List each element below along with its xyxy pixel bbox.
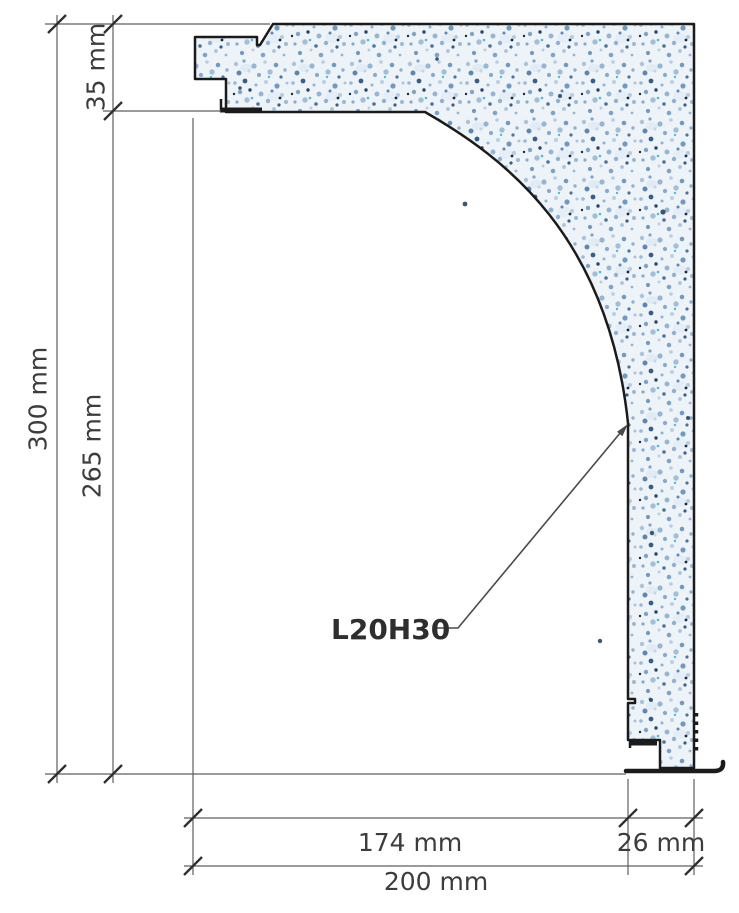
label-overall-height: 300 mm	[24, 347, 53, 451]
label-inner-width: 174 mm	[358, 828, 462, 857]
technical-drawing-canvas: 300 mm 35 mm 265 mm 174 mm 26 mm 200 mm …	[0, 0, 739, 913]
product-code-label: L20H30	[331, 613, 450, 646]
label-leg-width: 26 mm	[617, 828, 705, 857]
cornice-profile-outline	[195, 24, 694, 768]
cornice-profile-drawing: 300 mm 35 mm 265 mm 174 mm 26 mm 200 mm …	[0, 0, 739, 913]
label-inner-height: 265 mm	[78, 394, 107, 498]
label-top-height: 35 mm	[82, 23, 111, 111]
leader-line	[437, 424, 628, 628]
label-overall-width: 200 mm	[384, 867, 488, 896]
